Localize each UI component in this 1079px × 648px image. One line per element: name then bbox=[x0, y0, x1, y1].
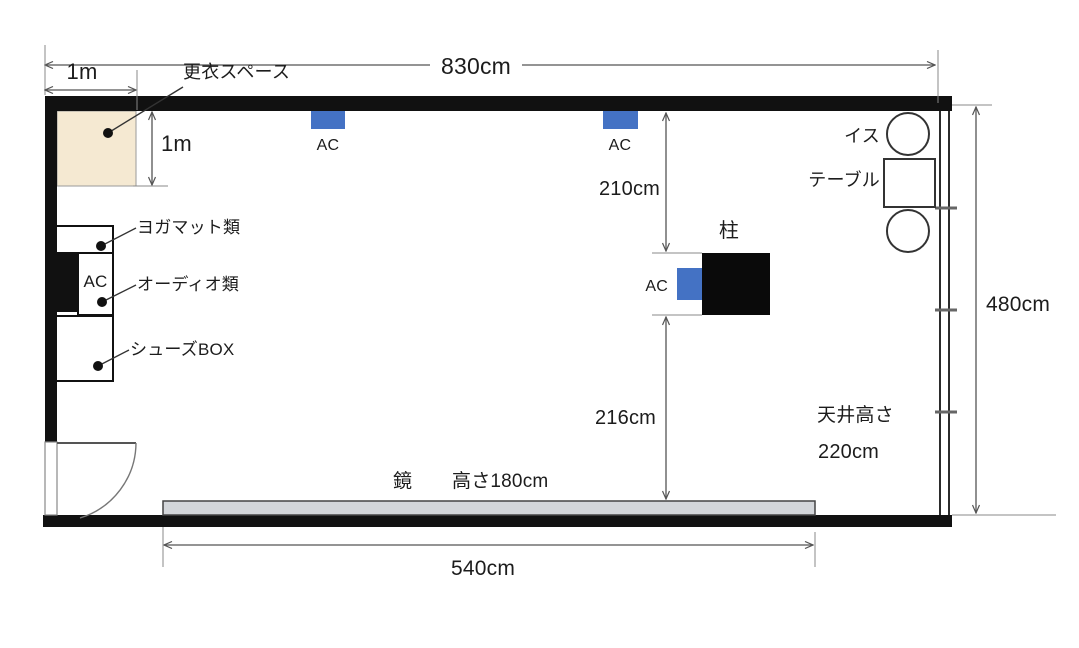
table bbox=[884, 159, 935, 207]
dim-label-room-depth: 480cm bbox=[986, 293, 1050, 317]
mirror-height-label: 高さ180cm bbox=[452, 471, 548, 493]
door-swing-arc bbox=[80, 443, 136, 518]
changing-space-label: 更衣スペース bbox=[183, 62, 290, 83]
ac-label-top-right: AC bbox=[598, 137, 642, 155]
leader-dot bbox=[103, 128, 113, 138]
ac-unit-pillar bbox=[677, 268, 702, 300]
ceiling-height-value: 220cm bbox=[818, 441, 879, 464]
ceiling-height-label: 天井高さ bbox=[817, 405, 894, 427]
leader-dot bbox=[96, 241, 106, 251]
dim-label-room-width: 830cm bbox=[430, 53, 522, 79]
chair-label: イス bbox=[818, 126, 880, 147]
mirror bbox=[163, 501, 815, 515]
dim-label-mirror-width: 540cm bbox=[433, 557, 533, 581]
door-frame bbox=[45, 442, 57, 515]
table-label: テーブル bbox=[793, 170, 880, 191]
top-wall bbox=[45, 96, 952, 111]
leader-dot bbox=[97, 297, 107, 307]
shoe-box-label: シューズBOX bbox=[130, 340, 234, 360]
floor-plan-drawing bbox=[0, 0, 1079, 648]
ac-label-pillar: AC bbox=[634, 278, 668, 296]
yoga-mats-label: ヨガマット類 bbox=[137, 218, 240, 238]
changing-space-area bbox=[57, 111, 136, 186]
pillar bbox=[702, 253, 770, 315]
chair-bottom bbox=[887, 210, 929, 252]
audio-label: オーディオ類 bbox=[137, 275, 239, 295]
dim-label-changing-depth: 1m bbox=[161, 131, 192, 156]
left-wall bbox=[45, 96, 57, 442]
dim-label-back-clearance: 216cm bbox=[574, 407, 656, 430]
ac-label-top-left: AC bbox=[306, 137, 350, 155]
ac-unit-top-left bbox=[311, 111, 345, 129]
chair-top bbox=[887, 113, 929, 155]
dim-label-front-clearance: 210cm bbox=[578, 178, 660, 201]
ac-unit-left-wall bbox=[56, 254, 78, 312]
ac-unit-top-right bbox=[603, 111, 638, 129]
mirror-label: 鏡 bbox=[393, 471, 412, 493]
ac-label-storage: AC bbox=[78, 272, 113, 292]
dim-label-changing-width: 1m bbox=[58, 59, 106, 84]
leader-dot bbox=[93, 361, 103, 371]
bottom-wall bbox=[43, 515, 952, 527]
floor-plan: 830cm 1m 1m 更衣スペース AC AC 210cm 柱 AC イス テ… bbox=[0, 0, 1079, 648]
pillar-label: 柱 bbox=[699, 220, 759, 243]
shoe-box bbox=[56, 316, 113, 381]
